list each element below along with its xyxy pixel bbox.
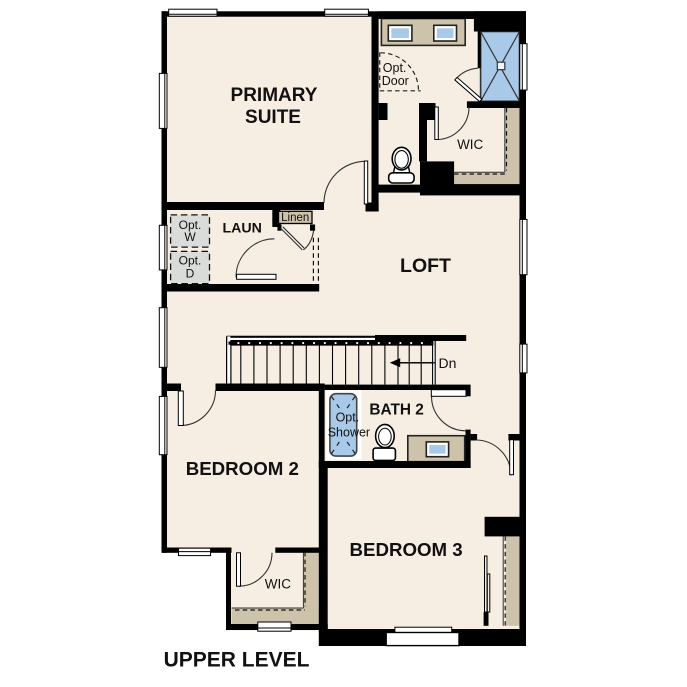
svg-text:PRIMARY: PRIMARY bbox=[231, 85, 318, 106]
svg-text:LAUN: LAUN bbox=[222, 221, 261, 237]
svg-text:Linen: Linen bbox=[281, 212, 309, 224]
svg-text:SUITE: SUITE bbox=[245, 107, 301, 128]
svg-text:Opt.: Opt. bbox=[179, 253, 202, 267]
svg-text:BEDROOM 3: BEDROOM 3 bbox=[350, 539, 463, 560]
svg-text:Shower: Shower bbox=[328, 425, 370, 439]
svg-text:Opt.: Opt. bbox=[383, 61, 407, 75]
svg-text:WIC: WIC bbox=[457, 137, 483, 152]
svg-text:BATH 2: BATH 2 bbox=[369, 402, 423, 419]
svg-text:Door: Door bbox=[382, 74, 409, 88]
svg-text:LOFT: LOFT bbox=[400, 255, 451, 277]
svg-text:W: W bbox=[184, 230, 196, 244]
svg-text:D: D bbox=[186, 266, 195, 280]
svg-text:BEDROOM 2: BEDROOM 2 bbox=[186, 458, 299, 479]
svg-text:UPPER LEVEL: UPPER LEVEL bbox=[164, 649, 310, 672]
svg-text:Dn: Dn bbox=[439, 355, 457, 371]
svg-text:Opt.: Opt. bbox=[336, 411, 360, 425]
svg-text:WIC: WIC bbox=[265, 577, 291, 592]
